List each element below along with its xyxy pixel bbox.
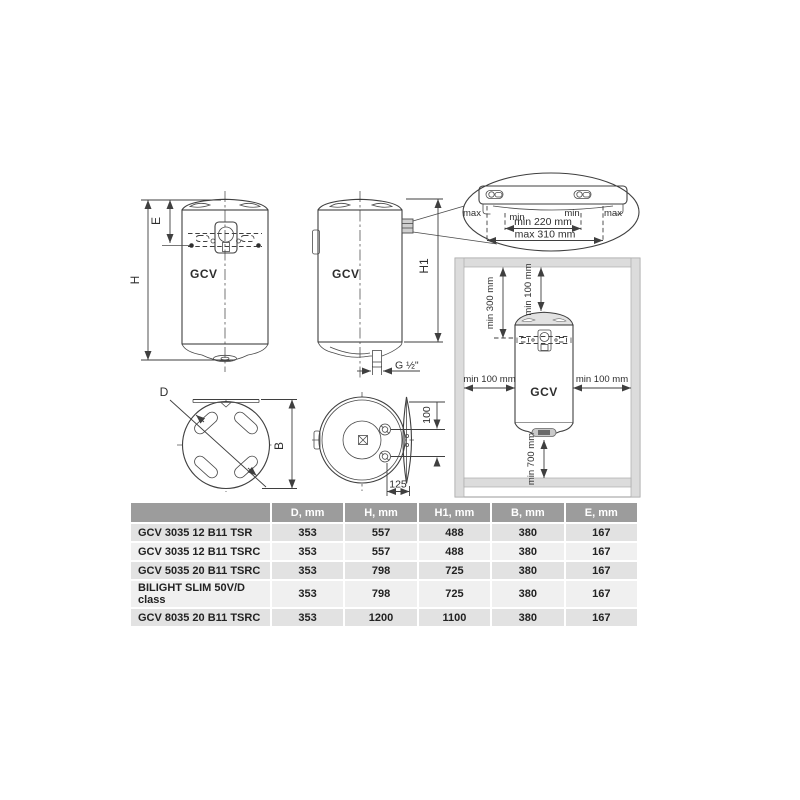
value-cell: 488 (419, 524, 490, 541)
header-cell-e: E, mm (566, 503, 637, 522)
value-cell: 167 (566, 581, 637, 607)
table-row: GCV 8035 20 B11 TSRC 353 1200 1100 380 1… (131, 609, 637, 626)
table-header-row: D, mm H, mm H1, mm B, mm E, mm (131, 503, 637, 522)
value-cell: 167 (566, 524, 637, 541)
value-cell: 1100 (419, 609, 490, 626)
bottom-view: 100 125 (312, 392, 445, 496)
model-cell: GCV 5035 20 B11 TSRC (131, 562, 270, 579)
dim-h-label: H (128, 276, 142, 285)
min-100-top-label: min 100 mm (523, 263, 534, 315)
min-700-label: min 700 mm (526, 433, 537, 485)
max-left-label: max (463, 208, 481, 219)
installation-diagram: GCV min 300 mm min 100 mm min 100 mm min… (455, 258, 640, 497)
value-cell: 380 (492, 581, 563, 607)
value-cell: 725 (419, 581, 490, 607)
value-cell: 798 (345, 562, 416, 579)
installed-heater: GCV (515, 312, 573, 436)
min-span-label: min 220 mm (514, 216, 572, 228)
value-cell: 353 (272, 562, 343, 579)
model-cell: BILIGHT SLIM 50V/D class (131, 581, 270, 607)
value-cell: 380 (492, 524, 563, 541)
dim-100-label: 100 (421, 406, 433, 424)
dim-h1-label: H1 (417, 258, 431, 274)
front-product-label: GCV (190, 267, 218, 281)
min-300-label: min 300 mm (485, 277, 496, 329)
installed-product-label: GCV (530, 385, 558, 399)
value-cell: 167 (566, 609, 637, 626)
dim-d-label: D (160, 385, 169, 399)
header-cell-model (131, 503, 270, 522)
model-cell: GCV 3035 12 B11 TSRC (131, 543, 270, 560)
value-cell: 488 (419, 543, 490, 560)
dim-e-label: E (149, 217, 163, 225)
value-cell: 167 (566, 562, 637, 579)
table-row: GCV 5035 20 B11 TSRC 353 798 725 380 167 (131, 562, 637, 579)
value-cell: 353 (272, 609, 343, 626)
value-cell: 725 (419, 562, 490, 579)
model-cell: GCV 8035 20 B11 TSRC (131, 609, 270, 626)
header-cell-d: D, mm (272, 503, 343, 522)
side-product-label: GCV (332, 267, 360, 281)
dim-125-label: 125 (389, 479, 407, 491)
value-cell: 557 (345, 524, 416, 541)
water-heater-spec-sheet: GCV H E (0, 0, 800, 800)
top-view: D B (160, 385, 297, 492)
table-row: GCV 3035 12 B11 TSRC 353 557 488 380 167 (131, 543, 637, 560)
side-bracket-block (402, 219, 413, 233)
spec-table: D, mm H, mm H1, mm B, mm E, mm GCV 3035 … (129, 501, 639, 628)
min-100-left-label: min 100 mm (463, 374, 515, 385)
dim-b-label: B (272, 442, 286, 450)
bracket-detail: max min min max min 220 mm max 310 mm (463, 173, 639, 251)
value-cell: 380 (492, 609, 563, 626)
model-cell: GCV 3035 12 B11 TSR (131, 524, 270, 541)
dim-g-label: G ½" (395, 360, 419, 372)
value-cell: 557 (345, 543, 416, 560)
value-cell: 167 (566, 543, 637, 560)
header-cell-b: B, mm (492, 503, 563, 522)
side-dim-g: G ½" (357, 360, 420, 376)
max-right-label: max (604, 208, 622, 219)
technical-drawing-canvas: GCV H E (0, 0, 800, 800)
value-cell: 380 (492, 562, 563, 579)
max-span-label: max 310 mm (515, 229, 576, 241)
table-row: BILIGHT SLIM 50V/D class 353 798 725 380… (131, 581, 637, 607)
value-cell: 353 (272, 543, 343, 560)
min-100-right-label: min 100 mm (576, 374, 628, 385)
front-dim-e: E (149, 200, 190, 246)
header-cell-h1: H1, mm (419, 503, 490, 522)
value-cell: 380 (492, 543, 563, 560)
table-row: GCV 3035 12 B11 TSR 353 557 488 380 167 (131, 524, 637, 541)
header-cell-h: H, mm (345, 503, 416, 522)
value-cell: 798 (345, 581, 416, 607)
value-cell: 353 (272, 524, 343, 541)
value-cell: 1200 (345, 609, 416, 626)
value-cell: 353 (272, 581, 343, 607)
front-view: GCV H E (128, 191, 268, 372)
